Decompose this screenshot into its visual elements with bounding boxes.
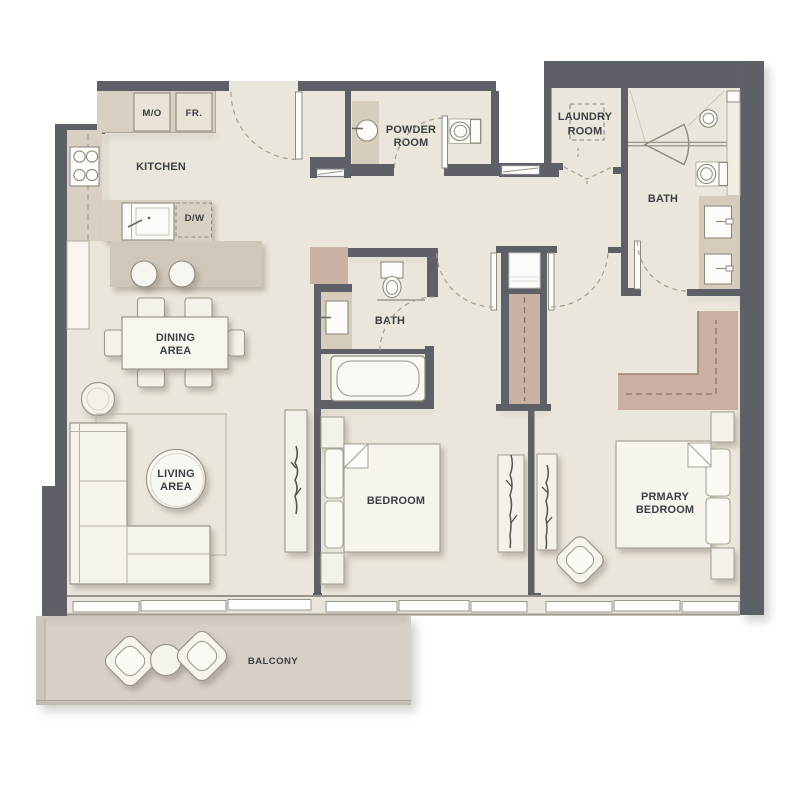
svg-text:ROOM: ROOM [568, 126, 603, 138]
svg-text:LIVING: LIVING [157, 468, 195, 480]
svg-text:FR.: FR. [186, 108, 203, 119]
svg-text:LAUNDRY: LAUNDRY [558, 111, 613, 123]
svg-text:BATH: BATH [648, 193, 678, 205]
svg-text:AREA: AREA [160, 345, 192, 357]
svg-text:AREA: AREA [160, 481, 192, 493]
svg-text:BALCONY: BALCONY [248, 656, 298, 667]
svg-text:D/W: D/W [185, 213, 205, 224]
svg-text:KITCHEN: KITCHEN [136, 161, 186, 173]
svg-text:M/O: M/O [142, 108, 161, 119]
svg-text:BEDROOM: BEDROOM [636, 504, 694, 516]
svg-text:DINING: DINING [156, 332, 195, 344]
svg-text:PRMARY: PRMARY [641, 491, 690, 503]
svg-text:BEDROOM: BEDROOM [367, 495, 425, 507]
svg-text:BATH: BATH [375, 315, 405, 327]
svg-text:POWDER: POWDER [386, 124, 436, 136]
